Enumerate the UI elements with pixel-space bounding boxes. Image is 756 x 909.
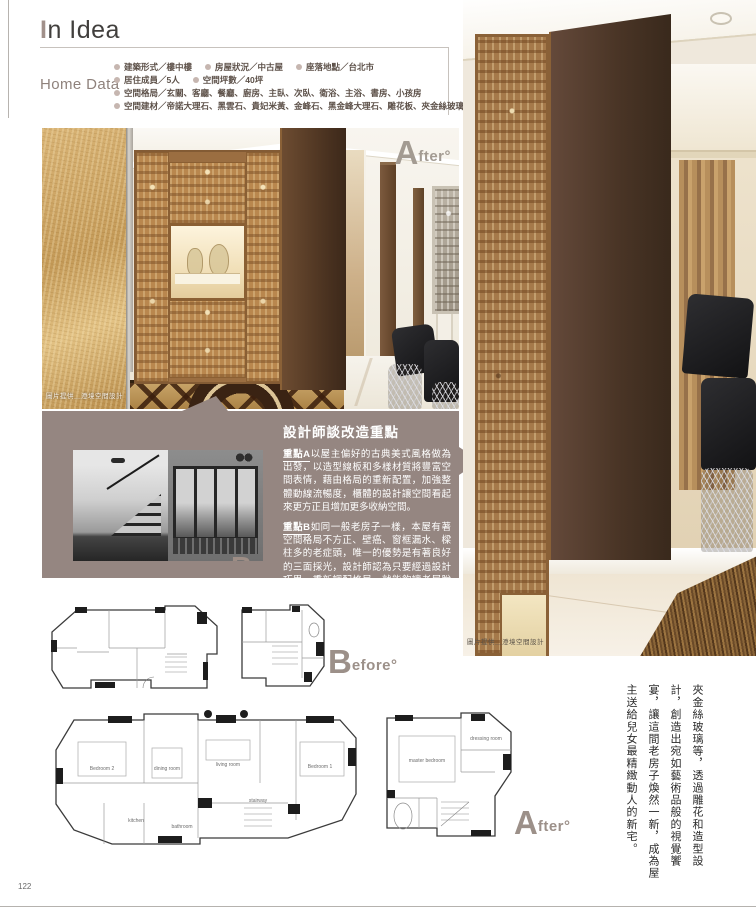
black-chair — [701, 378, 756, 470]
page-number: 122 — [18, 882, 31, 891]
plans-before-label: Before° — [328, 645, 398, 678]
chrome-wire-table — [701, 468, 753, 552]
before-photo-stair-room — [73, 450, 168, 561]
home-data-label: Home Data — [40, 76, 119, 93]
bullet-icon — [205, 64, 211, 70]
photo-display-cabinet — [134, 150, 282, 384]
photo-carved-wood-panel — [475, 34, 549, 656]
floor-plan-after-main: Bedroom 2 dining room living room Bedroo… — [48, 708, 361, 853]
chrome-wire-table — [432, 382, 459, 409]
mirror-ceiling-reflection — [671, 64, 756, 150]
floor-plan-after-upper: master bedroom dressing room — [375, 710, 521, 848]
home-data-row: 空間建材／帝諾大理石、黑雲石、貴妃米黃、金峰石、黑金峰大理石、雕花板、夾金絲玻璃 — [114, 100, 450, 112]
home-data-item: 房屋狀況／中古屋 — [205, 61, 283, 73]
title-underline — [40, 47, 448, 48]
home-data-item: 空間格局／玄關、客廳、餐廳、廚房、主臥、次臥、衛浴、主浴、書房、小孩房 — [114, 87, 422, 99]
page-title: In Idea — [40, 16, 120, 45]
window-pane — [238, 469, 256, 537]
home-data-row: 空間格局／玄關、客廳、餐廳、廚房、主臥、次臥、衛浴、主浴、書房、小孩房 — [114, 87, 450, 99]
window-wall — [173, 466, 258, 540]
home-data-item: 空間建材／帝諾大理石、黑雲石、貴妃米黃、金峰石、黑金峰大理石、雕花板、夾金絲玻璃 — [114, 100, 464, 112]
svg-text:bathroom: bathroom — [171, 824, 192, 830]
bullet-icon — [114, 103, 120, 109]
svg-text:Bedroom 2: Bedroom 2 — [90, 766, 115, 772]
vertical-essay-text: 夾金絲玻璃等，透過雕花和造型設計，創造出宛如藝術品般的視覺饗宴，讓這間老房子煥然… — [616, 684, 708, 880]
svg-text:kitchen: kitchen — [128, 818, 144, 824]
recessed-light — [710, 12, 732, 25]
pointer-up-icon — [182, 396, 228, 411]
page-title-rest: n Idea — [47, 16, 120, 44]
window-pane — [197, 469, 215, 537]
bullet-icon — [114, 90, 120, 96]
svg-text:stairway: stairway — [249, 798, 268, 804]
floor-plan-before-2f — [232, 602, 328, 695]
window-pane — [217, 469, 235, 537]
svg-text:dressing room: dressing room — [470, 736, 502, 742]
after-photo-main: After° 圖片提供＿澄境空間設計 — [42, 128, 459, 409]
window-pane — [176, 469, 194, 537]
home-data-item: 座落地點／台北市 — [296, 61, 374, 73]
photo-silver-trim — [126, 128, 133, 409]
point-b-lead: 重點B — [283, 522, 310, 535]
point-a-lead: 重點A — [283, 449, 310, 462]
carved-door-panel — [246, 152, 280, 382]
glass-art-object — [187, 248, 203, 276]
designer-note-paragraph-b: 重點B如同一般老房子一樣，本屋有著空間格局不方正、壁癌、窗框漏水、樑柱多的老症頭… — [283, 521, 451, 600]
home-data-row: 建築形式／樓中樓 房屋狀況／中古屋 座落地點／台北市 — [114, 61, 450, 73]
designer-notes-box: Before° 設計師談改造重點 重點A以屋主偏好的古典美式風格做為出發，以造型… — [42, 411, 459, 578]
floor-plan-before-1f — [47, 602, 223, 697]
bullet-icon — [114, 64, 120, 70]
before-photo-window-room — [168, 450, 263, 561]
photo-gold-wall-panel — [42, 128, 128, 409]
svg-text:dining room: dining room — [154, 766, 180, 772]
photo-credit-caption: 圖片提供＿澄境空間設計 — [467, 636, 544, 646]
after-photo-right: 圖片提供＿澄境空間設計 — [463, 0, 756, 656]
staircase — [111, 494, 161, 536]
before-photo: Before° — [73, 450, 263, 561]
designer-notes-title: 設計師談改造重點 — [283, 421, 451, 441]
lighted-display-niche — [500, 593, 548, 656]
home-data-item: 居住成員／5人 — [114, 74, 180, 86]
bullet-icon — [296, 64, 302, 70]
bottom-rule — [0, 906, 756, 907]
black-chair — [682, 293, 755, 378]
ceiling-lamp — [234, 453, 254, 462]
photo-dark-wood-column — [549, 0, 671, 560]
bullet-icon — [114, 77, 120, 83]
glass-art-object — [209, 244, 229, 276]
bullet-icon — [193, 77, 199, 83]
plans-after-label: After° — [514, 806, 571, 839]
ceiling-spotlights — [111, 458, 125, 463]
home-data-list: 建築形式／樓中樓 房屋狀況／中古屋 座落地點／台北市 居住成員／5人 空間坪數／… — [114, 61, 450, 112]
carved-door-panel — [136, 152, 169, 382]
carved-door-panel — [169, 300, 246, 378]
chrome-wire-table — [388, 364, 422, 409]
photo-carved-screen — [432, 186, 459, 314]
before-photo-label: Before° — [231, 554, 263, 561]
photo-credit-caption: 圖片提供＿澄境空間設計 — [46, 390, 123, 400]
magazine-page: In Idea Home Data 建築形式／樓中樓 房屋狀況／中古屋 座落地點… — [0, 0, 756, 909]
home-data-row: 居住成員／5人 空間坪數／40坪 — [114, 74, 450, 86]
niche-shelf — [175, 274, 240, 284]
svg-text:living room: living room — [216, 762, 240, 768]
designer-notes-text: 設計師談改造重點 重點A以屋主偏好的古典美式風格做為出發，以造型線板和多樣材質將… — [283, 421, 451, 607]
carved-door-panel — [169, 162, 246, 224]
after-photo-label: After° — [394, 136, 451, 169]
left-edge-rule — [8, 0, 9, 118]
photo-mirror-strip — [344, 150, 366, 362]
svg-text:master bedroom: master bedroom — [409, 758, 445, 764]
designer-note-paragraph-a: 重點A以屋主偏好的古典美式風格做為出發，以造型線板和多樣材質將豐富空間表情，藉由… — [283, 448, 451, 514]
cabinet-lighted-niche — [169, 224, 246, 300]
home-data-item: 建築形式／樓中樓 — [114, 61, 192, 73]
svg-text:Bedroom 1: Bedroom 1 — [308, 764, 333, 770]
photo-dark-wood-column — [280, 128, 346, 390]
home-data-item: 空間坪數／40坪 — [193, 74, 263, 86]
